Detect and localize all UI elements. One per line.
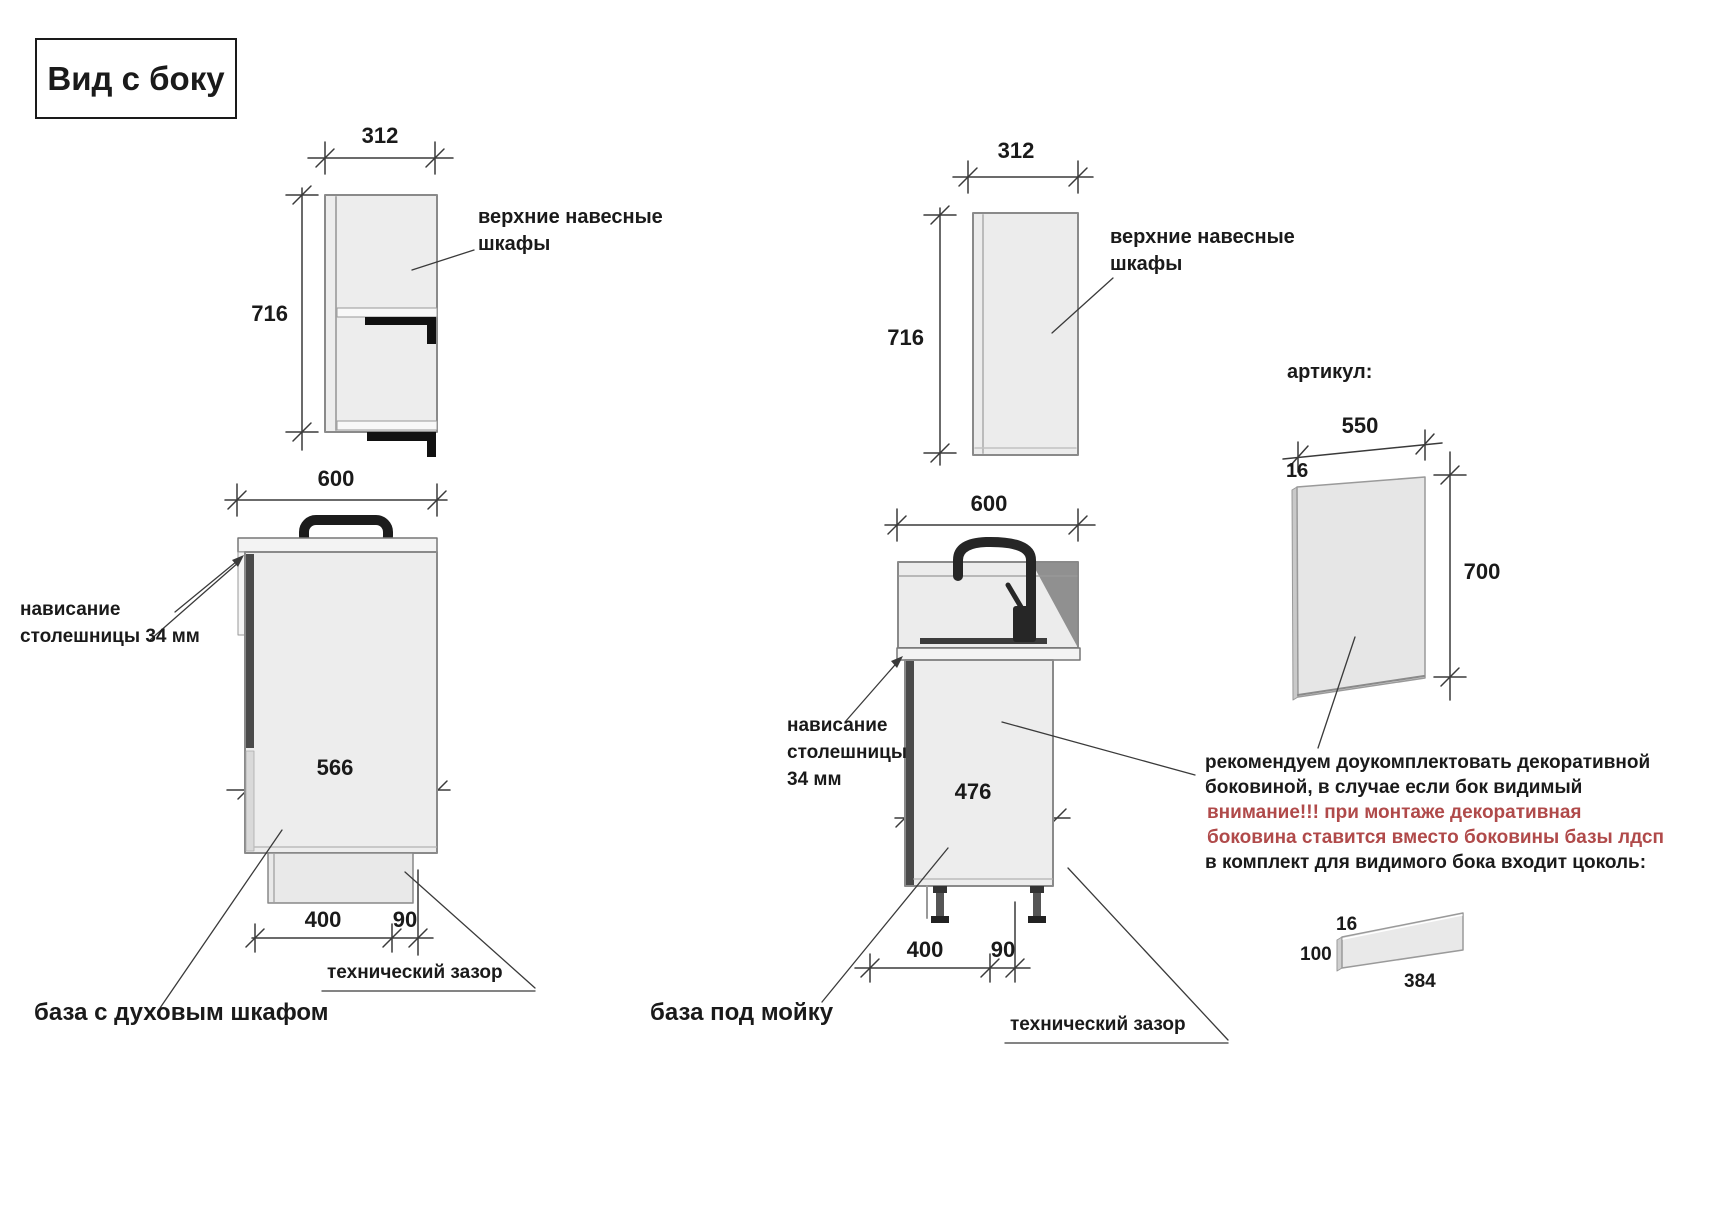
sink-base-body [897, 542, 1080, 923]
sink-base-name: база под мойку [650, 1000, 833, 1025]
dim-depth-oven: 566 [317, 756, 354, 779]
decor-panel-heading: артикул: [1287, 362, 1372, 383]
wall-cabinet-mid-body [973, 213, 1078, 455]
oven-gap-label: технический зазор [327, 963, 503, 983]
note-line-3-warning: внимание!!! при монтаже декоративная [1207, 800, 1582, 825]
dim-width-wall-mid: 312 [998, 139, 1035, 162]
dim-plinth-thickness: 16 [1336, 915, 1357, 935]
wall-cabinet-mid-label-1: верхние навесные [1110, 227, 1295, 248]
wall-cabinet-left-label-1: верхние навесные [478, 207, 663, 228]
sink-gap-label: технический зазор [1010, 1015, 1186, 1035]
dim-width-wall-left: 312 [362, 124, 399, 147]
sink-overhang-label-3: 34 мм [787, 770, 842, 790]
dim-top-sink: 600 [971, 492, 1008, 515]
wall-cabinet-left-body [325, 195, 437, 457]
side-view-drawing-page: Вид с боку 312 716 верхние навесные шкаф… [0, 0, 1726, 1222]
dim-gap-sink: 90 [991, 938, 1015, 961]
dim-panel-width: 550 [1342, 414, 1379, 437]
note-line-4-warning: боковина ставится вместо боковины базы л… [1207, 825, 1664, 850]
oven-overhang-label-1: нависание [20, 600, 121, 620]
note-line-1: рекомендуем доукомплектовать декоративно… [1205, 750, 1650, 775]
dim-height-wall-mid: 716 [887, 326, 924, 349]
dim-panel-thickness: 16 [1286, 461, 1308, 482]
oven-base-name: база с духовым шкафом [34, 1000, 329, 1025]
oven-overhang-label-2: столешницы 34 мм [20, 627, 200, 647]
wall-cabinet-mid-label-2: шкафы [1110, 254, 1182, 275]
dim-plinth-length: 384 [1404, 972, 1436, 992]
drawing-canvas [0, 0, 1726, 1222]
dim-plinth-sink: 400 [907, 938, 944, 961]
note-line-2: боковиной, в случае если бок видимый [1205, 775, 1582, 800]
wall-cabinet-left-label-2: шкафы [478, 234, 550, 255]
decor-panel-drawing [1292, 477, 1425, 700]
dim-panel-height: 700 [1464, 560, 1501, 583]
note-line-5: в комплект для видимого бока входит цоко… [1205, 850, 1646, 875]
dim-gap-oven: 90 [393, 908, 417, 931]
oven-base-body [238, 520, 437, 903]
sink-overhang-label-1: нависание [787, 716, 888, 736]
dim-plinth-height: 100 [1300, 945, 1332, 965]
sink-overhang-label-2: столешницы [787, 743, 907, 763]
dim-height-wall-left: 716 [251, 302, 288, 325]
dim-depth-sink: 476 [955, 780, 992, 803]
page-title: Вид с боку [35, 38, 237, 119]
dim-top-oven: 600 [318, 467, 355, 490]
dim-plinth-oven: 400 [305, 908, 342, 931]
